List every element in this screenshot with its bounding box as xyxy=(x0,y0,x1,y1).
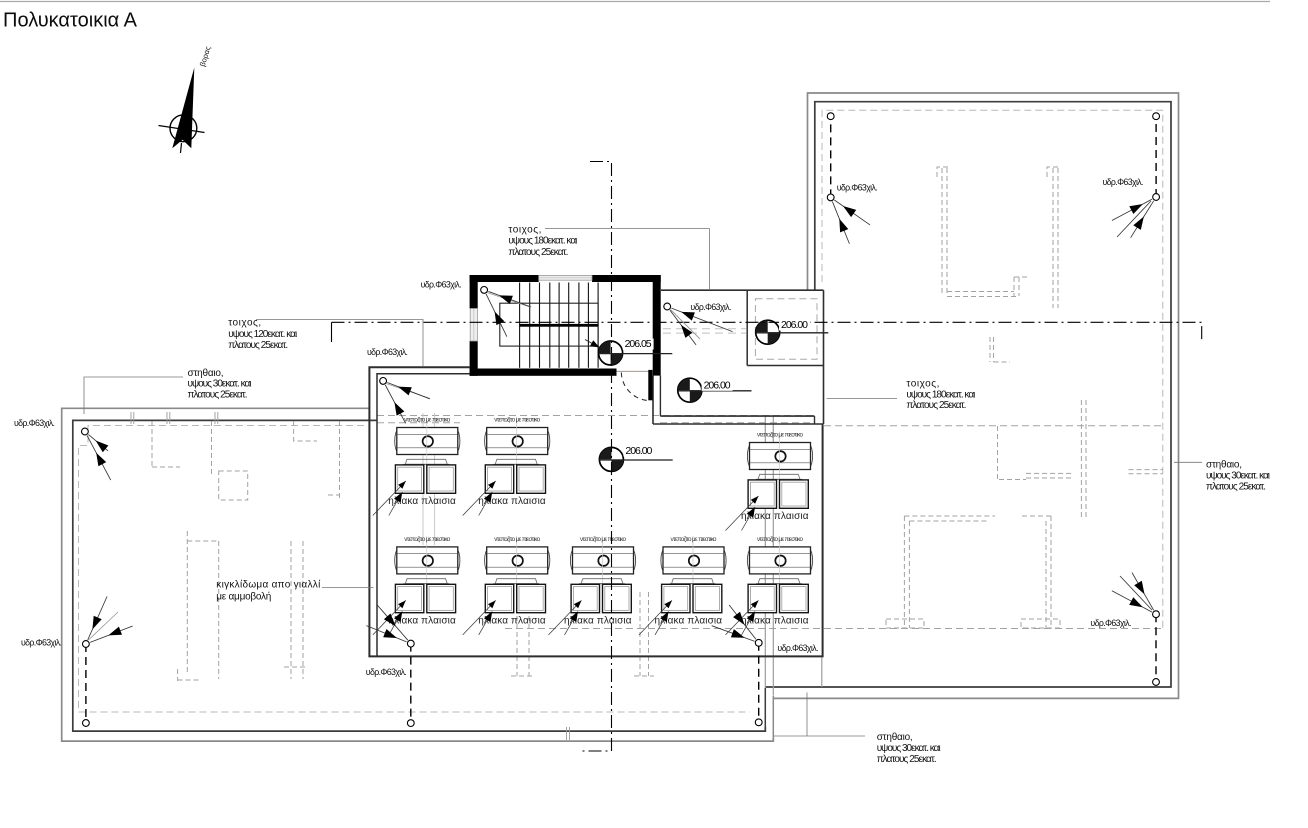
svg-text:με αμμοβολή: με αμμοβολή xyxy=(216,591,271,603)
svg-text:υψους 180εκατ. και: υψους 180εκατ. και xyxy=(508,236,577,247)
svg-text:υψους 30εκατ. και: υψους 30εκατ. και xyxy=(877,743,941,754)
svg-text:206.00: 206.00 xyxy=(625,445,652,457)
svg-text:πλατους 25εκατ.: πλατους 25εκατ. xyxy=(228,340,288,351)
svg-text:υδρ.Φ63χιλ.: υδρ.Φ63χιλ. xyxy=(366,667,407,677)
svg-text:υψους 120εκατ. και: υψους 120εκατ. και xyxy=(228,329,297,340)
svg-text:υδρ.Φ63χιλ.: υδρ.Φ63χιλ. xyxy=(367,347,408,357)
svg-text:ντεποζιτο με πιεστικο: ντεποζιτο με πιεστικο xyxy=(494,417,540,424)
svg-text:206.00: 206.00 xyxy=(781,319,808,331)
svg-text:Πολυκατοικια Α: Πολυκατοικια Α xyxy=(3,10,138,32)
svg-text:ντεποζιτο με πιεστικο: ντεποζιτο με πιεστικο xyxy=(404,417,450,424)
svg-text:στηθαιο,: στηθαιο, xyxy=(1206,460,1242,471)
svg-text:υδρ.Φ63χιλ.: υδρ.Φ63χιλ. xyxy=(1103,177,1144,187)
svg-text:ντεποζιτο με πιεστικο: ντεποζιτο με πιεστικο xyxy=(494,536,540,543)
svg-text:υδρ.Φ63χιλ.: υδρ.Φ63χιλ. xyxy=(837,183,878,193)
svg-text:υδρ.Φ63χιλ.: υδρ.Φ63χιλ. xyxy=(421,280,462,290)
svg-text:υδρ.Φ63χιλ.: υδρ.Φ63χιλ. xyxy=(690,302,731,312)
svg-text:ντεποζιτο με πιεστικο: ντεποζιτο με πιεστικο xyxy=(671,536,717,543)
svg-text:υψους 30εκατ. και: υψους 30εκατ. και xyxy=(1206,471,1270,482)
svg-text:πλατους 25εκατ.: πλατους 25εκατ. xyxy=(188,389,248,400)
svg-text:κιγκλίδωμα απο γιαλλί: κιγκλίδωμα απο γιαλλί xyxy=(216,579,321,591)
svg-text:υδρ.Φ63χιλ.: υδρ.Φ63χιλ. xyxy=(14,418,55,428)
svg-text:206.00: 206.00 xyxy=(704,379,731,391)
svg-text:υψους 180εκατ. και: υψους 180εκατ. και xyxy=(906,389,975,400)
svg-text:υδρ.Φ63χιλ.: υδρ.Φ63χιλ. xyxy=(21,638,62,648)
svg-text:πλατους 25εκατ.: πλατους 25εκατ. xyxy=(1206,482,1266,493)
svg-text:ντεποζιτο με πιεστικο: ντεποζιτο με πιεστικο xyxy=(404,536,450,543)
svg-text:υδρ.Φ63χιλ.: υδρ.Φ63χιλ. xyxy=(777,643,818,653)
svg-text:υδρ.Φ63χιλ.: υδρ.Φ63χιλ. xyxy=(1090,618,1131,628)
svg-text:τοιχος,: τοιχος, xyxy=(508,224,541,235)
svg-text:πλατους 25εκατ.: πλατους 25εκατ. xyxy=(906,400,966,411)
svg-text:ντεποζιτο με πιεστικο: ντεποζιτο με πιεστικο xyxy=(580,536,626,543)
svg-text:ντεποζιτο με πιεστικο: ντεποζιτο με πιεστικο xyxy=(757,536,803,543)
svg-text:πλατους 25εκατ.: πλατους 25εκατ. xyxy=(877,754,937,765)
svg-text:ντεποζιτο με πιεστικο: ντεποζιτο με πιεστικο xyxy=(757,432,803,439)
svg-text:τοιχος,: τοιχος, xyxy=(906,378,939,389)
svg-text:στηθαιο,: στηθαιο, xyxy=(188,368,224,379)
svg-text:πλατους 25εκατ.: πλατους 25εκατ. xyxy=(508,247,568,258)
svg-text:στηθαιο,: στηθαιο, xyxy=(877,732,913,743)
svg-text:206.05: 206.05 xyxy=(625,338,652,350)
svg-text:υψους 30εκατ. και: υψους 30εκατ. και xyxy=(188,379,252,390)
